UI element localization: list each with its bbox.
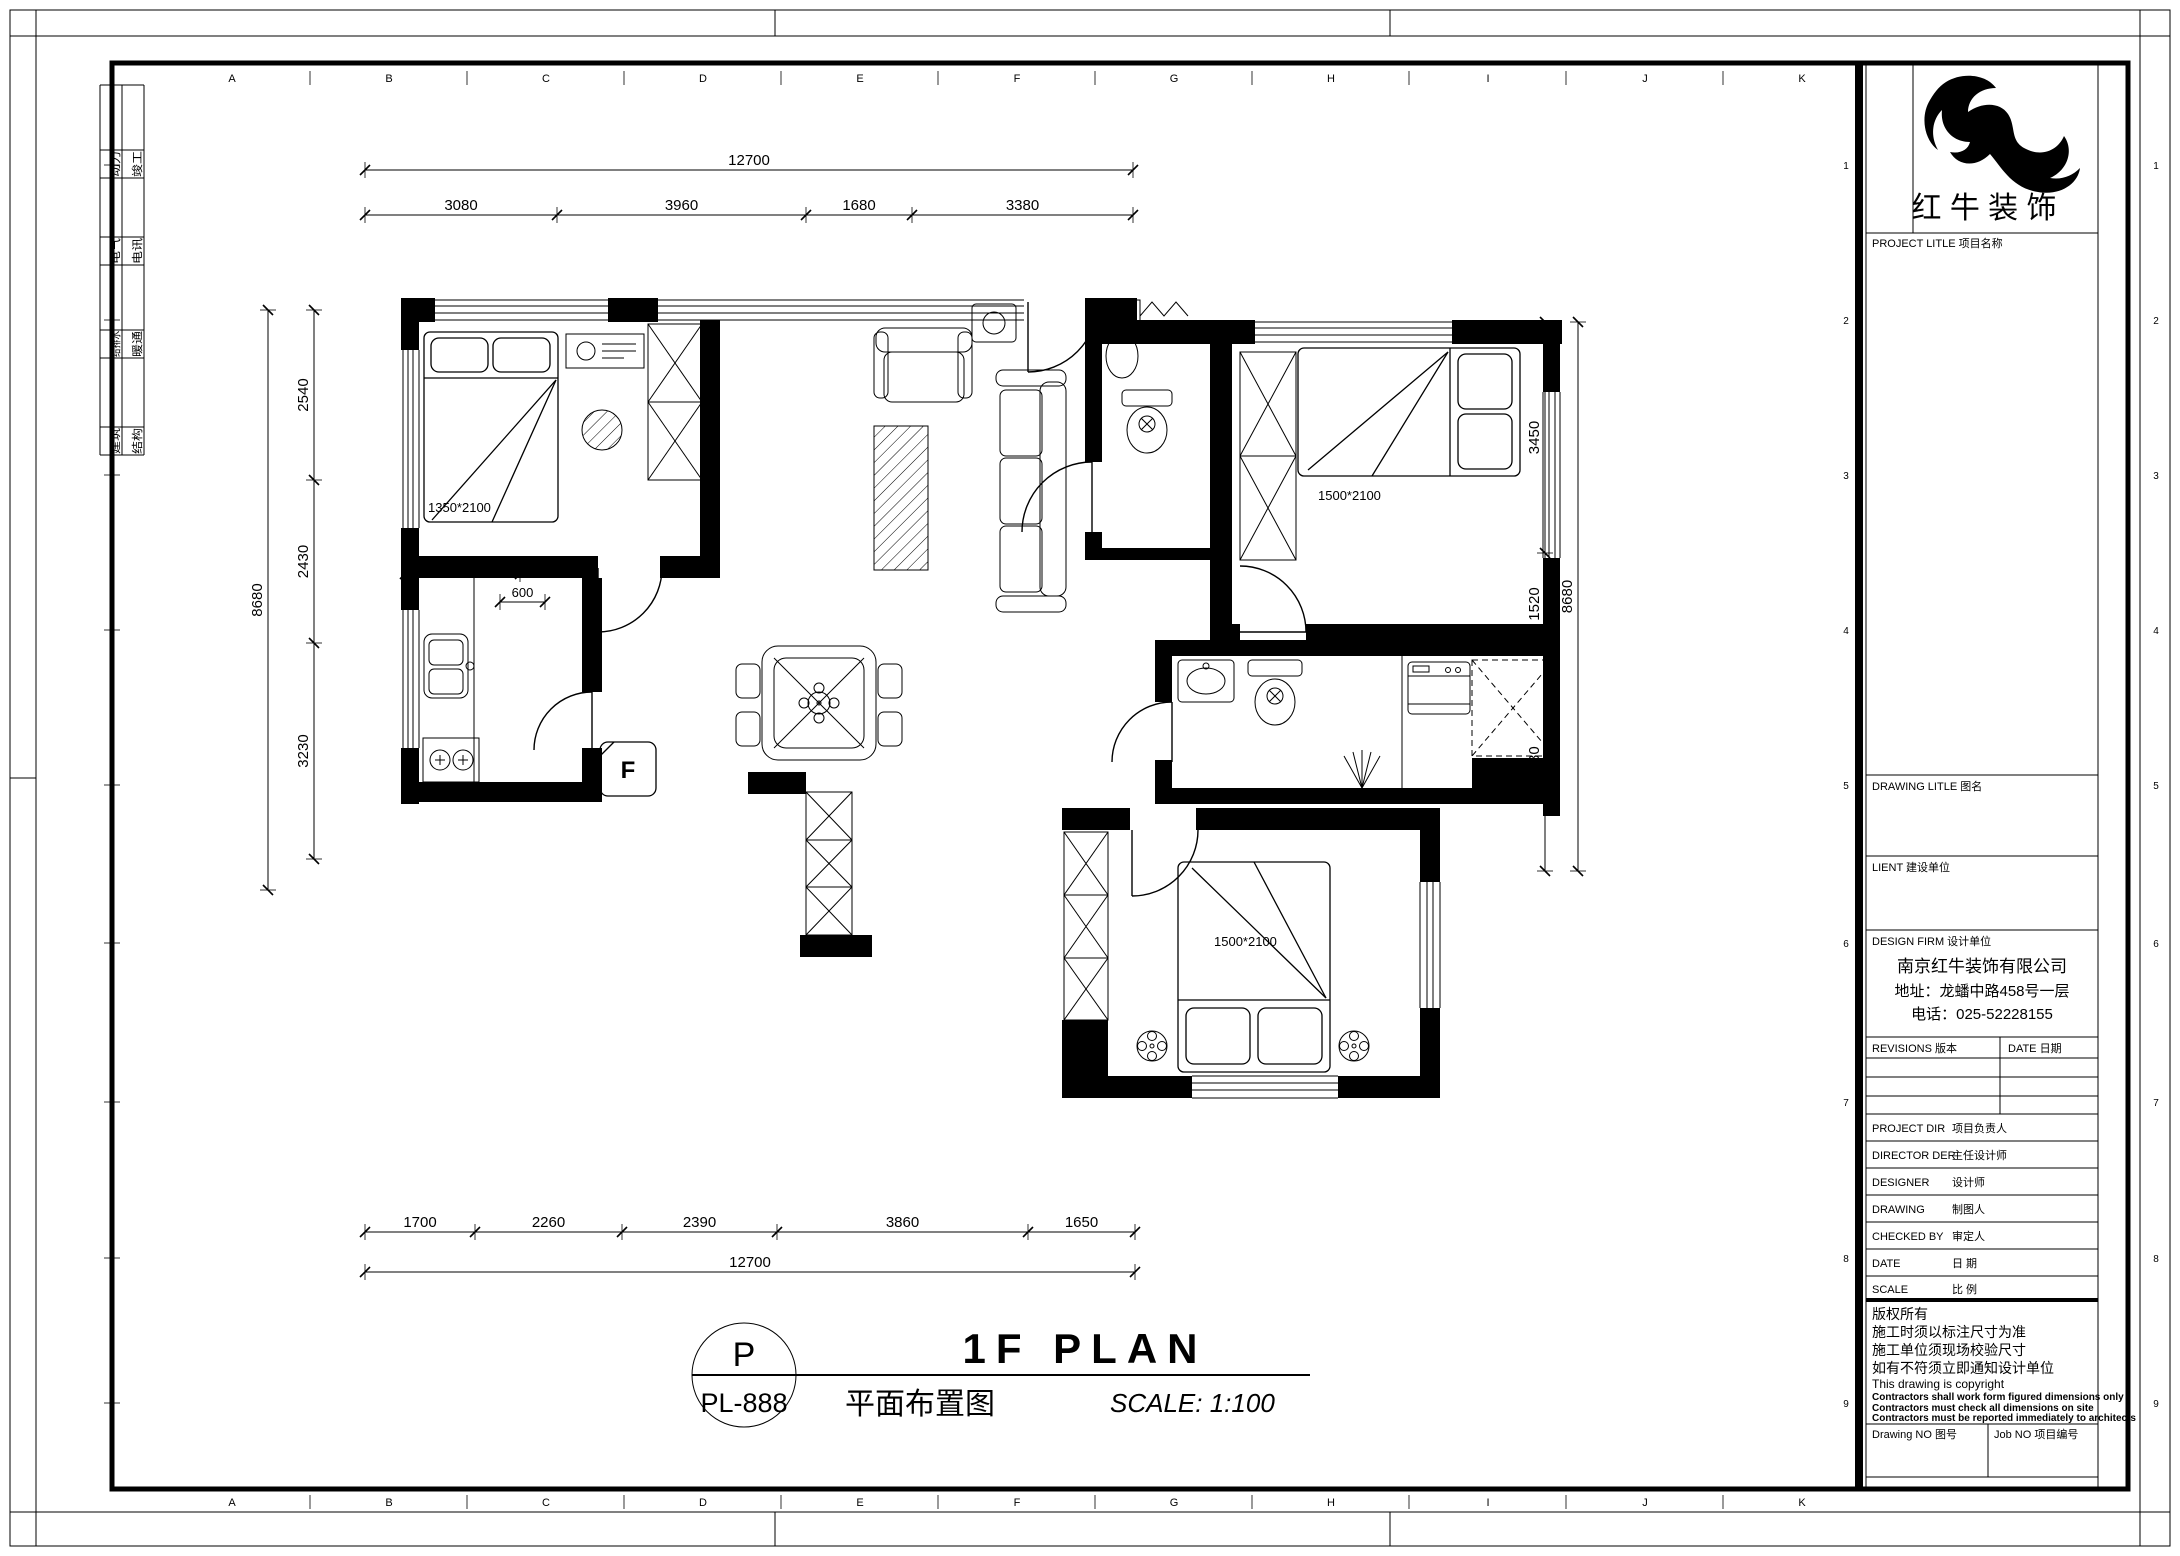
client-label: LIENT 建设单位: [1872, 860, 1950, 874]
row-designer-cn: 设计师: [1952, 1176, 1985, 1189]
grid-letter-bottom: D: [699, 1497, 707, 1509]
strip-label: 电气: [108, 238, 122, 264]
copyright-line: Contractors shall work form figured dime…: [1872, 1392, 2124, 1403]
windows: [403, 300, 1560, 1098]
dimension-value: 3450: [1526, 421, 1543, 454]
grid-letter-top: F: [1014, 73, 1021, 85]
grid-letter-top: G: [1170, 73, 1179, 85]
grid-letter-bottom: F: [1014, 1497, 1021, 1509]
row-date-cn: 日 期: [1952, 1257, 1977, 1270]
shower-head-icon: [1344, 750, 1380, 795]
grid-number-inner: 2: [1843, 316, 1849, 327]
grid-letter-top: K: [1798, 73, 1806, 85]
window-bedroom2-east: [1543, 392, 1560, 558]
logo-text: 红 牛 装 饰: [1911, 192, 2056, 225]
project-title-label: PROJECT LITLE 项目名称: [1872, 236, 2003, 250]
grid-letter-top: B: [385, 73, 392, 85]
grid-number-margin: 5: [2153, 781, 2159, 792]
row-director-en: DIRECTOR DER: [1872, 1150, 1956, 1162]
dimension-value: 2430: [295, 545, 312, 578]
copyright-line: Contractors must be reported immediately…: [1872, 1413, 2136, 1424]
kitchen-counter: [423, 578, 479, 782]
dimensions: 12700 3080396016803380 17002260239038601…: [249, 152, 1586, 1280]
dimension-value: 3860: [886, 1214, 919, 1231]
row-project-dir-en: PROJECT DIR: [1872, 1123, 1945, 1135]
grid-letter-bottom: K: [1798, 1497, 1806, 1509]
window-bedroom1-west: [403, 350, 419, 528]
copyright-line: This drawing is copyright: [1872, 1377, 2005, 1391]
grid-number-margin: 3: [2153, 471, 2159, 482]
company-address: 地址：龙蟠中路458号一层: [1894, 983, 2069, 1000]
grid-number-inner: 4: [1843, 626, 1849, 637]
dimension-value: 1520: [1526, 587, 1543, 620]
grid-number-margin: 2: [2153, 316, 2159, 327]
stool: [582, 410, 622, 450]
grid-letter-top: C: [542, 73, 550, 85]
grid-letter-top: A: [228, 73, 236, 85]
hongniu-logo-icon: [1924, 76, 2080, 193]
grid-number-margin: 7: [2153, 1098, 2159, 1109]
job-no-label: Job NO 项目编号: [1994, 1427, 2078, 1441]
grid-number-margin: 6: [2153, 939, 2159, 950]
grid-letter-bottom: A: [228, 1497, 236, 1509]
dimension-value: 12700: [728, 152, 770, 169]
plan-scale: SCALE: 1:100: [1110, 1388, 1275, 1418]
bed-master: [424, 332, 558, 522]
grid-letter-top: H: [1327, 73, 1335, 85]
grid-number-inner: 3: [1843, 471, 1849, 482]
washer: [1408, 662, 1470, 714]
plan-title: 1F PLAN: [962, 1325, 1207, 1372]
copyright-line: 施工时须以标注尺寸为准: [1872, 1324, 2026, 1340]
strip-label: 建筑: [108, 428, 122, 454]
strip-label: 暖通: [131, 331, 144, 357]
dimension-value: 1650: [1065, 1214, 1098, 1231]
row-scale-cn: 比 例: [1952, 1282, 1977, 1296]
grid-letter-bottom: J: [1642, 1497, 1648, 1509]
dresser: [566, 334, 644, 368]
sofa: [996, 370, 1066, 612]
dim-bottom-chain: 17002260239038601650: [360, 1214, 1140, 1240]
grid-number-inner: 1: [1843, 161, 1849, 172]
doors: [534, 302, 1306, 896]
grid-letter-top: I: [1486, 73, 1489, 85]
dimension-value: 1130: [449, 557, 477, 572]
hall-cabinet: [806, 792, 852, 935]
date-header-label: DATE 日期: [2008, 1042, 2062, 1055]
nightstand-flower: [1137, 1031, 1167, 1061]
dim-bottom-total: 12700: [360, 1254, 1140, 1280]
plan-subtitle: 平面布置图: [845, 1388, 995, 1421]
row-scale-en: SCALE: [1872, 1284, 1908, 1296]
dim-left-chain: 254024303230: [295, 305, 322, 864]
copyright-line: 施工单位须现场校验尺寸: [1872, 1342, 2026, 1358]
fridge-label: F: [621, 757, 636, 784]
drawing-no-label: Drawing NO 图号: [1872, 1428, 1957, 1441]
armchair: [874, 328, 972, 402]
door-bedroom2: [1240, 566, 1306, 632]
nightstand-flower: [1339, 1031, 1369, 1061]
copyright-line: 如有不符须立即通知设计单位: [1872, 1360, 2054, 1376]
entry-side-table: [972, 304, 1016, 342]
wardrobe-bedroom1: [648, 324, 702, 480]
grid-number-margin: 9: [2153, 1399, 2159, 1410]
grid-number-margin: 1: [2153, 161, 2159, 172]
window-bedroom2-top: [1255, 322, 1452, 342]
dimension-value: 2540: [295, 378, 312, 411]
door-bedroom3: [1132, 830, 1198, 896]
dim-top-total: 12700: [360, 152, 1138, 178]
drawing-sheet: 动力 竣工 电气 电讯 给排水 暖通 建筑 结构 AABBCCDDEEFFGGH…: [0, 0, 2180, 1556]
dimension-value: 1700: [403, 1214, 436, 1231]
row-designer-en: DESIGNER: [1872, 1177, 1930, 1189]
row-checked-en: CHECKED BY: [1872, 1231, 1944, 1243]
bed-master-label: 1350*2100: [428, 500, 491, 515]
grid-letter-top: J: [1642, 73, 1648, 85]
rug: [874, 426, 928, 570]
dimension-value: 2260: [532, 1214, 565, 1231]
grid-number-inner: 5: [1843, 781, 1849, 792]
door-bath1: [1022, 462, 1092, 532]
grid-letter-bottom: E: [856, 1497, 863, 1509]
strip-label: 动力: [109, 151, 122, 177]
walls: [401, 298, 1562, 1098]
wardrobe-bedroom3: [1064, 832, 1108, 1020]
grid-letter-bottom: B: [385, 1497, 392, 1509]
dimension-value: 1680: [842, 197, 875, 214]
window-bedroom1-top: [435, 300, 608, 320]
grid-letter-top: D: [699, 73, 707, 85]
dimension-value: 3230: [295, 734, 312, 767]
row-project-dir-cn: 项目负责人: [1952, 1121, 2007, 1135]
window-bedroom3-south: [1192, 1076, 1338, 1098]
window-living-top: [658, 300, 1024, 320]
grid-number-inner: 9: [1843, 1399, 1849, 1410]
void-shaft: [1472, 660, 1554, 756]
discipline-strip: 动力 竣工 电气 电讯 给排水 暖通 建筑 结构: [100, 85, 144, 455]
dim-right-total: 8680: [1559, 317, 1586, 876]
dimension-value: 3230: [1526, 746, 1543, 779]
grid-number-inner: 8: [1843, 1254, 1849, 1265]
window-bedroom3-east: [1420, 882, 1440, 1008]
dim-top-chain: 3080396016803380: [360, 197, 1138, 223]
door-bath2: [1112, 702, 1172, 762]
company-phone: 电话：025-52228155: [1911, 1006, 2053, 1023]
grid-number-inner: 6: [1843, 939, 1849, 950]
window-kitchen-west: [403, 610, 419, 748]
bubble-top-label: P: [733, 1336, 756, 1374]
bed-bottom-label: 1500*2100: [1214, 934, 1277, 949]
strip-label: 电讯: [131, 238, 144, 264]
title-bar: P PL-888 1F PLAN 平面布置图 SCALE: 1:100: [692, 1323, 1310, 1427]
revisions-label: REVISIONS 版本: [1872, 1041, 1957, 1055]
dining-table: [736, 646, 902, 760]
wardrobe-bedroom2: [1240, 352, 1296, 560]
bath2-fixtures: [1178, 660, 1470, 795]
copyright-line: 版权所有: [1872, 1306, 1928, 1322]
grid-number-margin: 4: [2153, 626, 2159, 637]
row-date-en: DATE: [1872, 1258, 1901, 1270]
dimension-value: 600: [512, 585, 534, 600]
door-bedroom1: [598, 568, 662, 632]
drawing-title-label: DRAWING LITLE 图名: [1872, 779, 1982, 793]
floor-plan: 1350*2100: [249, 152, 1586, 1280]
dimension-value: 3960: [665, 197, 698, 214]
dimension-value: 3080: [444, 197, 477, 214]
design-firm-label: DESIGN FIRM 设计单位: [1872, 934, 1991, 948]
row-checked-cn: 审定人: [1952, 1229, 1985, 1243]
strip-label: 结构: [130, 428, 144, 454]
dim-left-total: 8680: [249, 305, 276, 895]
row-drawing-en: DRAWING: [1872, 1204, 1925, 1216]
strip-label: 竣工: [130, 151, 144, 177]
grid-number-margin: 8: [2153, 1254, 2159, 1265]
grid-letter-bottom: C: [542, 1497, 550, 1509]
grid-number-inner: 7: [1843, 1098, 1849, 1109]
grid-letter-bottom: H: [1327, 1497, 1335, 1509]
dimension-value: 12700: [729, 1254, 771, 1271]
dimension-value: 2390: [683, 1214, 716, 1231]
company-name: 南京红牛装饰有限公司: [1897, 957, 2067, 976]
bed-right: [1298, 348, 1520, 476]
title-block: 红 牛 装 饰 PROJECT LITLE 项目名称 DRAWING LITLE…: [1866, 63, 2136, 1489]
grid-letter-bottom: G: [1170, 1497, 1179, 1509]
bubble-bottom-label: PL-888: [700, 1388, 787, 1418]
dim-interior-600: 600: [495, 585, 550, 610]
strip-label: 给排水: [108, 331, 122, 357]
door-kitchen: [534, 692, 592, 750]
dimension-value: 8680: [1559, 580, 1576, 613]
grid-letter-bottom: I: [1486, 1497, 1489, 1509]
bed-right-label: 1500*2100: [1318, 488, 1381, 503]
bed-bottom: [1178, 862, 1330, 1072]
row-drawing-cn: 制图人: [1952, 1203, 1985, 1216]
cad-canvas: 动力 竣工 电气 电讯 给排水 暖通 建筑 结构 AABBCCDDEEFFGGH…: [0, 0, 2180, 1556]
grid-letter-top: E: [856, 73, 863, 85]
row-director-cn: 主任设计师: [1952, 1149, 2007, 1162]
dimension-value: 3380: [1006, 197, 1039, 214]
dimension-value: 8680: [249, 583, 266, 616]
sheet-margins: [10, 10, 2170, 1546]
